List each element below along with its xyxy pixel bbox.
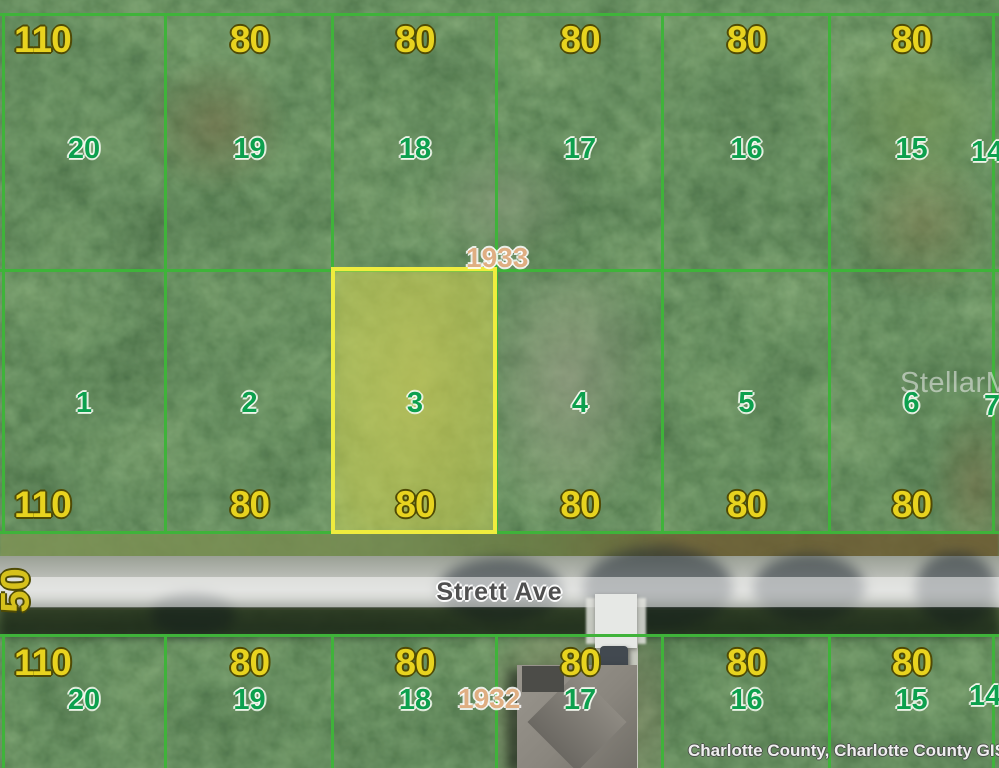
lot-width-label: 80 [497, 642, 663, 684]
lot-number-label: 1 [2, 387, 166, 420]
lot-width-label: 80 [830, 19, 993, 61]
parcel-cell: 6 80 [830, 269, 993, 531]
lot-number-label: 19 [166, 684, 333, 717]
parcel-cell: 80 17 [497, 13, 663, 269]
block-number-label: 1933 [466, 242, 528, 274]
lot-width-label: 80 [333, 484, 497, 526]
lot-number-label: 15 [830, 133, 993, 166]
lot-number-label-partial: 14 [971, 136, 999, 169]
lot-number-label: 20 [2, 133, 166, 166]
lot-width-label: 80 [166, 484, 333, 526]
parcel-cell: 80 16 [663, 13, 830, 269]
lot-width-label: 110 [2, 642, 166, 684]
lot-number-label: 16 [663, 684, 830, 717]
parcel-cell: 3 80 [333, 269, 497, 531]
lot-number-label: 3 [333, 387, 497, 420]
lot-number-label-partial: 14 [969, 680, 999, 713]
lot-width-label: 80 [497, 484, 663, 526]
lot-width-label: 80 [166, 19, 333, 61]
roadside-trees [0, 603, 999, 637]
parcel-cell: 1 110 [2, 269, 166, 531]
lot-width-label: 80 [830, 484, 993, 526]
lot-number-label: 19 [166, 133, 333, 166]
lot-number-label: 17 [497, 684, 663, 717]
parcel-cell: 80 19 [166, 13, 333, 269]
lot-width-label: 80 [497, 19, 663, 61]
lot-number-label: 4 [497, 387, 663, 420]
lot-width-label: 110 [2, 484, 166, 526]
right-of-way-width-label: 50 [0, 563, 39, 619]
parcel-cell: 110 20 [2, 634, 166, 768]
parcel-map: 110 20 80 19 80 18 80 17 80 16 80 15 14 … [0, 0, 999, 768]
lot-number-label: 5 [663, 387, 830, 420]
lot-number-label: 2 [166, 387, 333, 420]
lot-width-label: 80 [663, 19, 830, 61]
lot-width-label: 80 [333, 642, 497, 684]
lot-width-label: 80 [663, 642, 830, 684]
block-number-label: 1932 [458, 683, 520, 715]
lot-number-label: 17 [497, 133, 663, 166]
lot-number-label: 16 [663, 133, 830, 166]
lot-width-label: 110 [2, 19, 166, 61]
parcel-cell: 80 19 [166, 634, 333, 768]
lot-line-horizontal [0, 531, 999, 534]
attribution-watermark: Charlotte County, Charlotte County GIS [688, 741, 999, 761]
parcel-cell: 80 17 [497, 634, 663, 768]
mls-watermark: StellarMLS [900, 367, 999, 400]
lot-width-label: 80 [333, 19, 497, 61]
parcel-cell: 4 80 [497, 269, 663, 531]
lot-number-label: 18 [333, 133, 497, 166]
lot-width-label: 80 [166, 642, 333, 684]
parcel-cell: 80 18 [333, 13, 497, 269]
lot-number-label: 20 [2, 684, 166, 717]
parcel-cell: 110 20 [2, 13, 166, 269]
lot-width-label: 80 [663, 484, 830, 526]
parcel-cell: 5 80 [663, 269, 830, 531]
lot-width-label: 80 [830, 642, 993, 684]
parcel-cell: 2 80 [166, 269, 333, 531]
street-name-label: Strett Ave [0, 578, 999, 607]
parcel-cell: 80 15 [830, 13, 993, 269]
